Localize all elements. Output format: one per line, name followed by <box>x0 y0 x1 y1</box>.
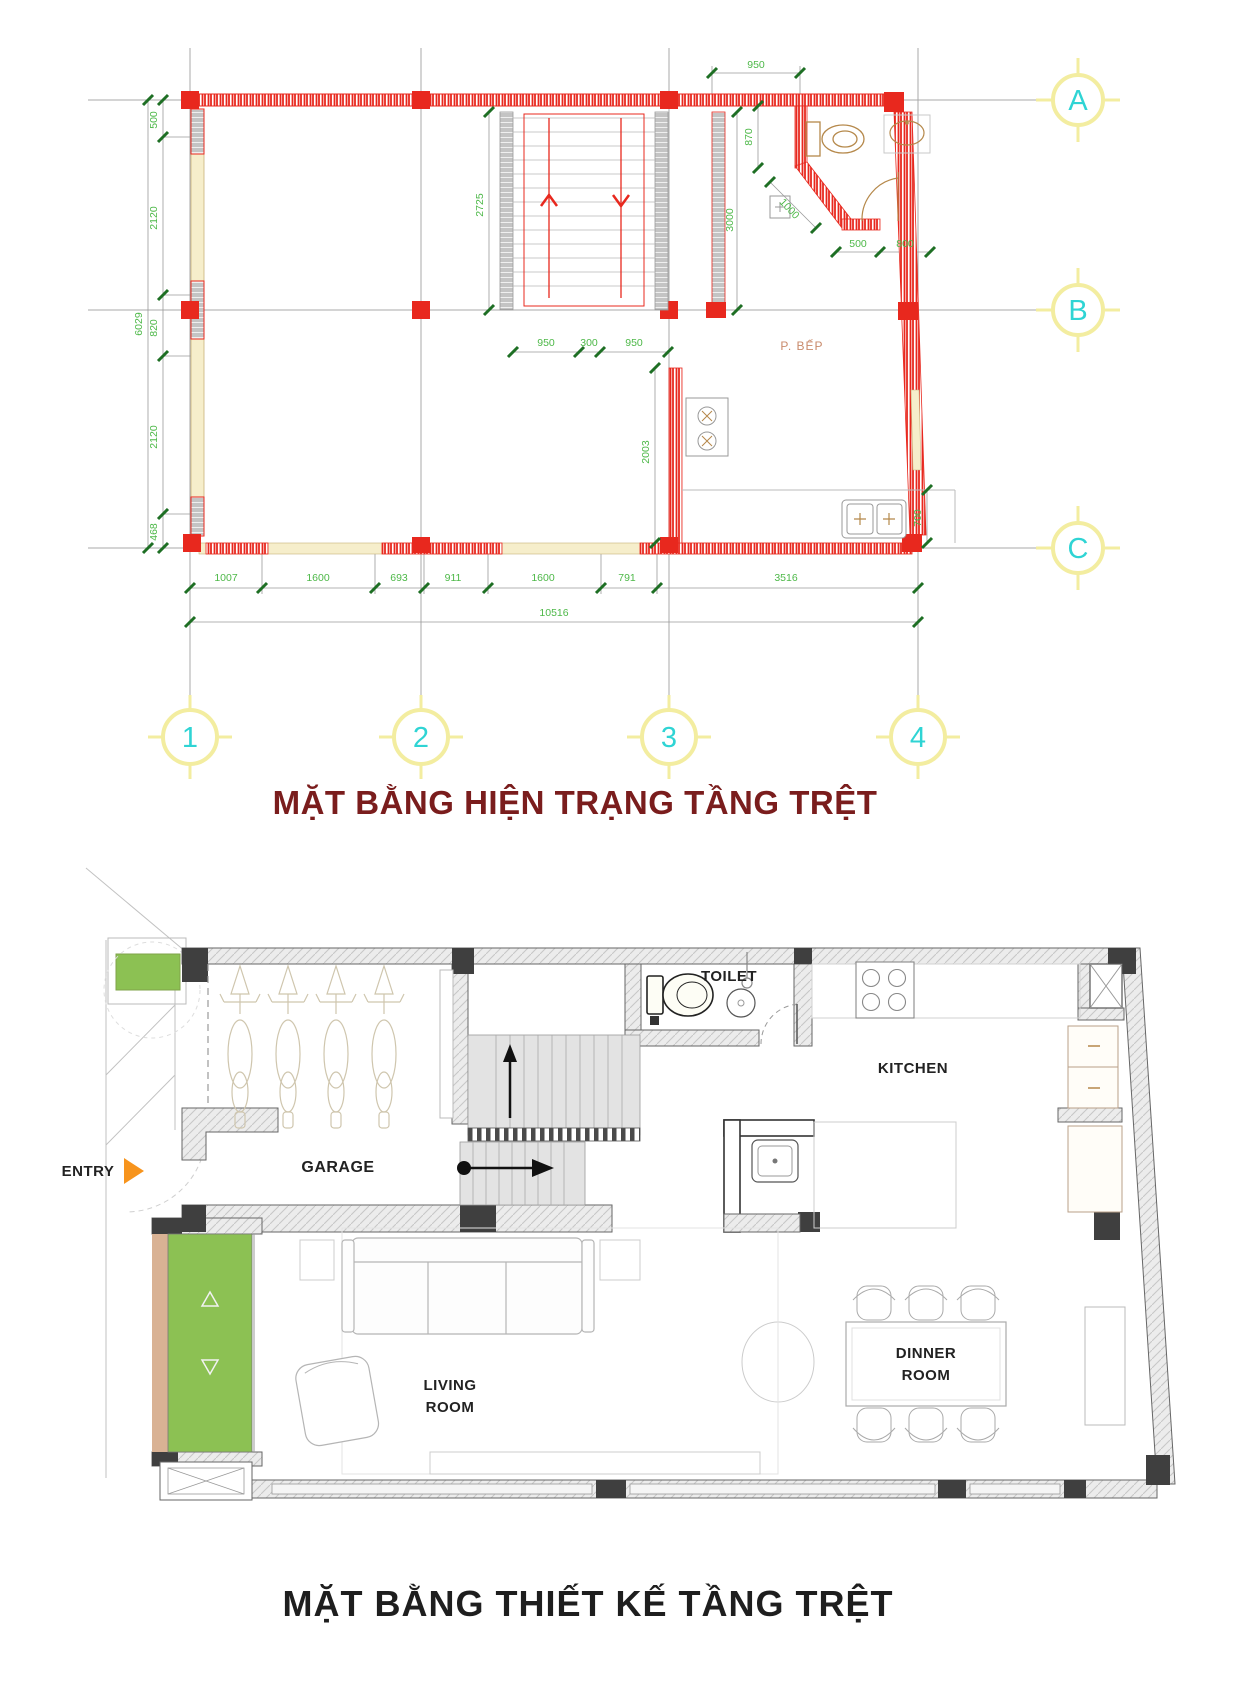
dinner-room-label-line2: ROOM <box>902 1367 951 1384</box>
dim-bottom-1600a: 1600 <box>306 572 330 584</box>
grid-col-label-1: 1 <box>182 722 198 754</box>
motorbike-icon <box>364 966 404 1128</box>
dim-bottom-911: 911 <box>445 572 462 584</box>
dim-bottom-1007: 1007 <box>214 572 238 584</box>
dim-wc-500: 500 <box>849 238 867 250</box>
dim-bottom-1600b: 1600 <box>531 572 555 584</box>
living-room-label-line1: LIVING <box>423 1377 476 1394</box>
grid-col-bubbles: 1 2 3 4 <box>163 710 945 764</box>
dim-stairw-950a: 950 <box>537 337 555 349</box>
flush-valve-icon <box>650 1016 659 1025</box>
side-table <box>300 1240 334 1280</box>
garage: GARAGE <box>208 964 453 1176</box>
kitchen-label: KITCHEN <box>878 1060 948 1077</box>
dim-left-2120a: 2120 <box>148 206 160 230</box>
dining-table <box>846 1322 1006 1406</box>
basin-icon <box>727 989 755 1017</box>
dim-left-820: 820 <box>148 319 160 337</box>
entry-arrow-icon <box>124 1158 144 1184</box>
toilet-door-swing <box>761 1004 799 1044</box>
dim-hall-3000: 3000 <box>724 208 736 232</box>
dim-stairw-950b: 950 <box>625 337 643 349</box>
dim-bottom-791: 791 <box>618 572 636 584</box>
dim-wc-800: 800 <box>896 238 914 250</box>
cad-plan-title: MẶT BẰNG HIỆN TRẠNG TẦNG TRỆT <box>273 784 878 821</box>
garage-door-leaf <box>440 970 453 1118</box>
dim-bottom-total-10516: 10516 <box>539 607 568 619</box>
dinner-room: DINNER ROOM <box>742 1286 1125 1442</box>
dim-stairw-300: 300 <box>580 337 598 349</box>
grid-col-label-3: 3 <box>661 722 677 754</box>
cad-stairs <box>500 112 668 310</box>
grid-row-bubbles: A B C <box>1053 75 1103 573</box>
island-sink-icon <box>724 1120 814 1232</box>
dim-bottom-693: 693 <box>390 572 408 584</box>
tv-bench <box>430 1452 760 1474</box>
living-room-label-line2: ROOM <box>426 1399 475 1416</box>
grid-col-label-4: 4 <box>910 722 926 754</box>
dim-top-950: 950 <box>747 59 765 71</box>
floor-plan-sheet: A B C 1 2 3 4 <box>0 0 1238 1689</box>
motorbike-icon <box>220 966 260 1128</box>
dim-left-500: 500 <box>148 111 160 129</box>
window-seat <box>1085 1307 1125 1425</box>
cad-walls <box>191 94 926 554</box>
dim-kitchen-2003: 2003 <box>640 440 652 464</box>
design-plan: GARAGE <box>62 868 1175 1624</box>
grid-col-label-2: 2 <box>413 722 429 754</box>
entry-label: ENTRY <box>62 1163 115 1180</box>
motorbike-icons <box>220 966 404 1128</box>
dim-left-468: 468 <box>148 523 160 541</box>
grid-bubble-ticks <box>148 58 1120 779</box>
kitchen: KITCHEN <box>724 962 1122 1232</box>
grid-row-label-b: B <box>1068 295 1087 327</box>
stove-icon <box>686 398 728 456</box>
kitchen-room-label: P. BẾP <box>780 338 823 353</box>
toilet-icon <box>806 122 864 156</box>
dim-sink-700: 700 <box>912 509 924 527</box>
motorbike-icon <box>268 966 308 1128</box>
design-stairs <box>457 1035 640 1205</box>
armchair-icon <box>294 1354 381 1448</box>
island-counter <box>814 1122 956 1228</box>
entry-step-box <box>160 1462 252 1500</box>
design-plan-title: MẶT BẰNG THIẾT KẾ TẦNG TRỆT <box>283 1582 894 1624</box>
lower-cabinet <box>1068 1126 1122 1212</box>
dim-bottom-3516: 3516 <box>774 572 798 584</box>
side-table <box>600 1240 640 1280</box>
dim-left-total-6029: 6029 <box>133 312 145 336</box>
plans-canvas: A B C 1 2 3 4 <box>0 0 1238 1689</box>
counter-sinks-icon <box>1068 1026 1118 1108</box>
stove-icon <box>856 962 914 1018</box>
double-sink-icon <box>842 500 906 538</box>
living-room: LIVING ROOM <box>294 1228 778 1474</box>
dim-stair-2725: 2725 <box>474 193 486 217</box>
dim-wc-870: 870 <box>743 128 755 146</box>
sofa-icon <box>342 1238 594 1334</box>
dinner-room-label-line1: DINNER <box>896 1345 957 1362</box>
fridge-shaft-icon <box>1090 964 1122 1008</box>
door-swing-icon <box>862 172 898 221</box>
entry: ENTRY <box>62 1158 144 1184</box>
grid-row-label-a: A <box>1068 85 1088 117</box>
toilet-label: TOILET <box>701 968 757 985</box>
motorbike-icon <box>316 966 356 1128</box>
dim-left-2120b: 2120 <box>148 425 160 449</box>
grid-row-label-c: C <box>1068 533 1089 565</box>
side-planter-strip <box>152 1234 254 1452</box>
cad-plan: A B C 1 2 3 4 <box>88 48 1120 821</box>
garage-label: GARAGE <box>301 1159 374 1176</box>
